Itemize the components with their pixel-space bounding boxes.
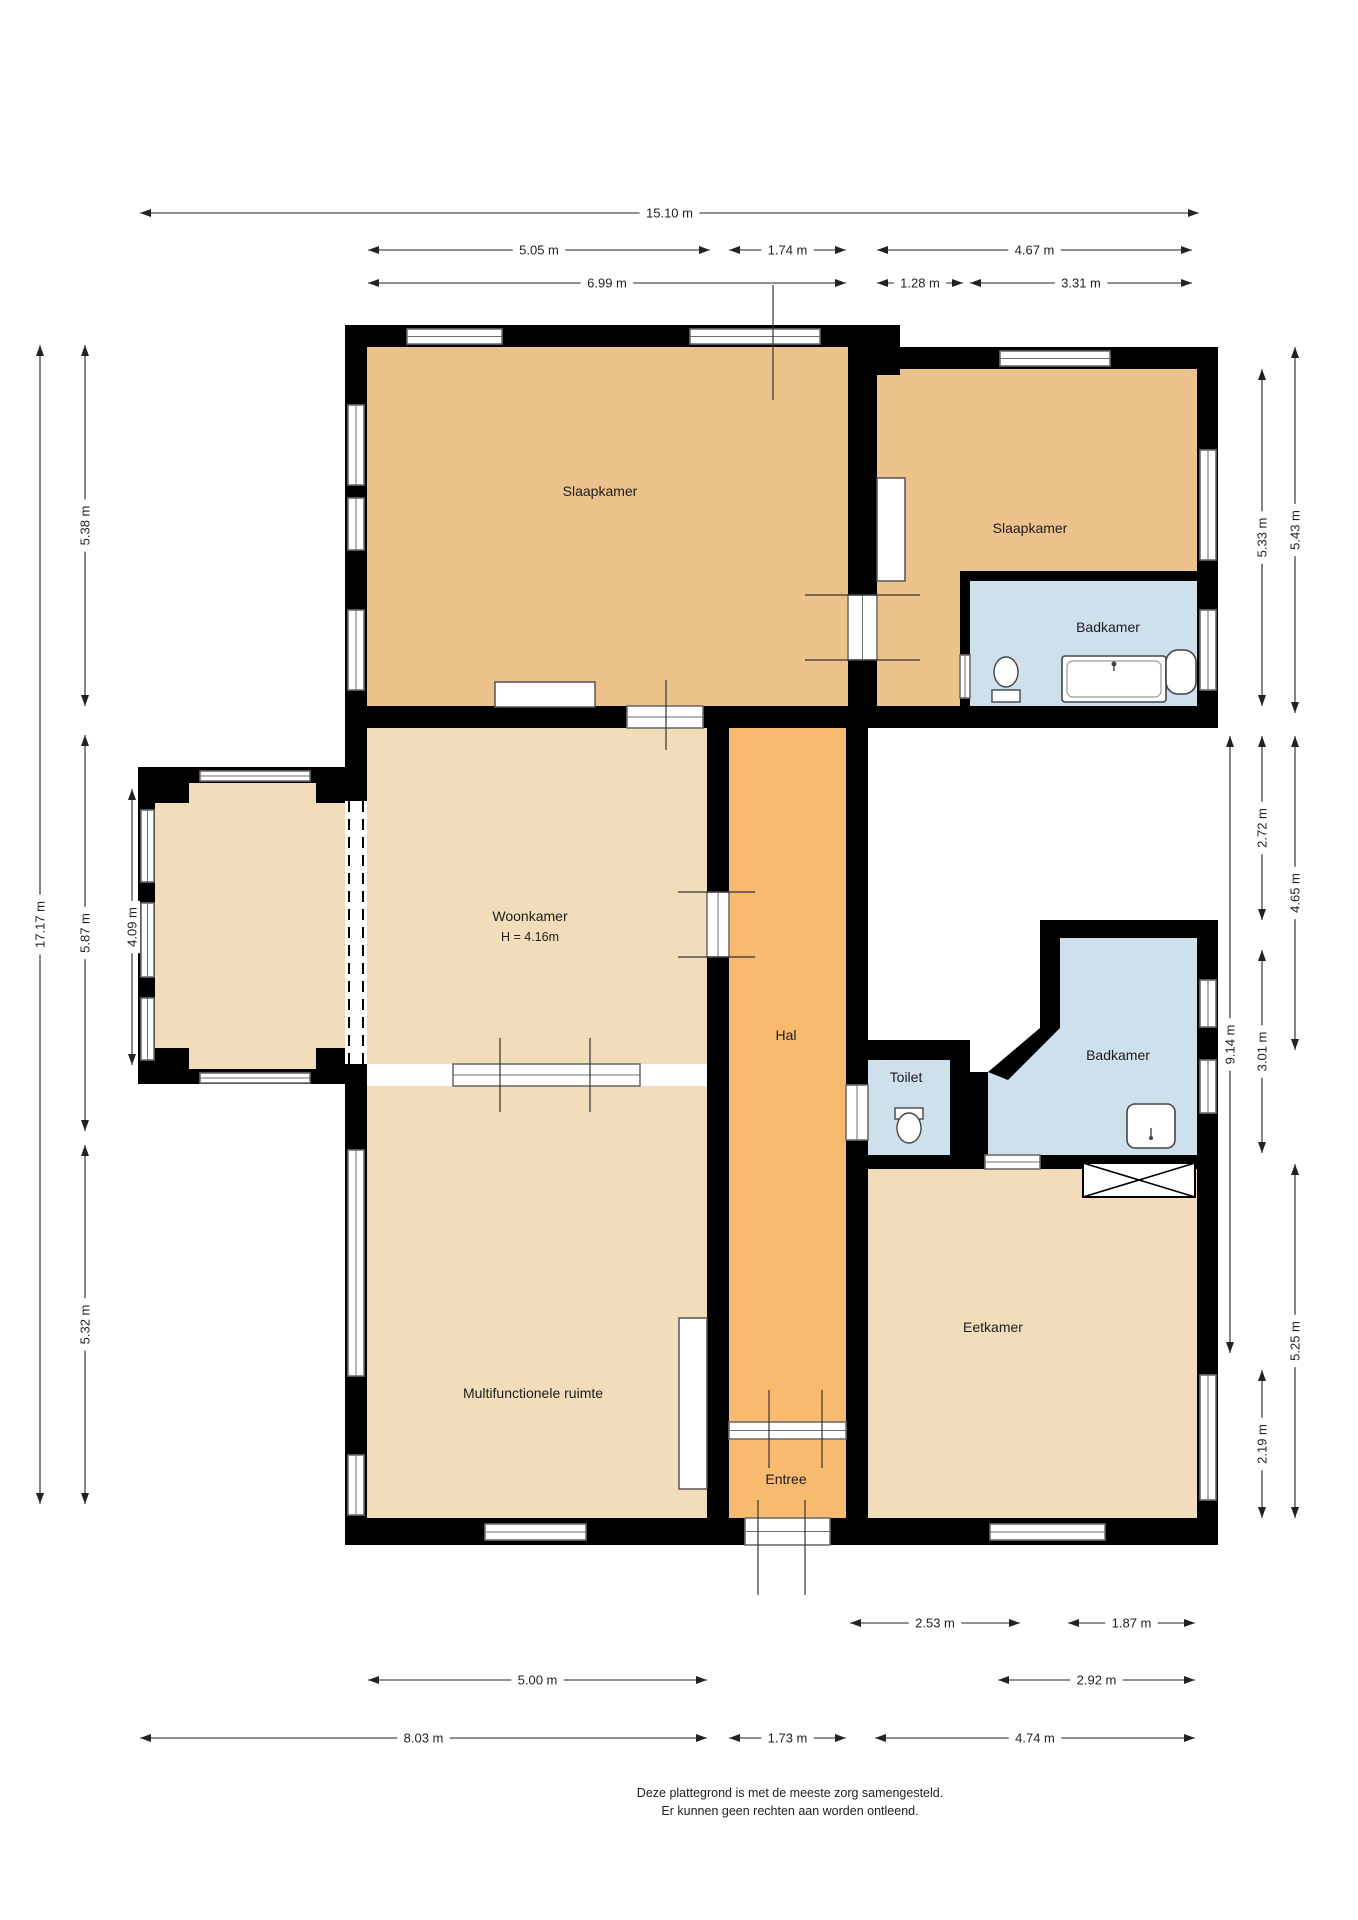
dimension-label: 5.05 m — [519, 243, 559, 258]
room-eetkamer — [868, 1169, 1197, 1518]
floorplan-page: SlaapkamerSlaapkamerBadkamerWoonkamerH =… — [0, 0, 1358, 1920]
room-sublabel-woonkamer: H = 4.16m — [501, 930, 559, 944]
dimension-label-group: 3.01 m — [1254, 1025, 1270, 1077]
wall-badkamer2-top-wall — [1040, 920, 1197, 938]
dimension-label-group: 5.38 m — [77, 499, 93, 551]
dimension-label: 5.32 m — [78, 1305, 93, 1345]
wall-toilet-top-wall — [846, 1040, 970, 1060]
dimension-label-group: 17.17 m — [32, 895, 48, 955]
dimension-label-group: 5.43 m — [1287, 504, 1303, 556]
room-erker — [155, 783, 367, 1069]
dimension-label: 2.19 m — [1255, 1424, 1270, 1464]
dimension-label-group: 5.32 m — [77, 1298, 93, 1350]
dimension-label-group: 4.09 m — [124, 901, 140, 953]
dimension-label: 4.09 m — [125, 907, 140, 947]
room-label-multifunctionele-ruimte: Multifunctionele ruimte — [463, 1385, 603, 1401]
sink-icon-badkamer1 — [1166, 650, 1196, 694]
dimension-label-group: 6.99 m — [581, 275, 633, 291]
room-label-slaapkamer-1: Slaapkamer — [563, 483, 638, 499]
room-multifunctionele-ruimte — [367, 1086, 707, 1518]
dimension-label: 9.14 m — [1223, 1025, 1238, 1065]
dimension-label: 17.17 m — [33, 901, 48, 948]
dimension-label: 3.31 m — [1061, 276, 1101, 291]
dimension-label: 2.72 m — [1255, 808, 1270, 848]
sink-icon-badkamer2 — [1127, 1104, 1175, 1148]
dimension-label-group: 5.05 m — [513, 242, 565, 258]
sink2-tap-dot — [1149, 1136, 1153, 1140]
dimension-label: 5.00 m — [518, 1673, 558, 1688]
dimension-label: 5.43 m — [1288, 510, 1303, 550]
dimension-label-group: 1.73 m — [761, 1730, 813, 1746]
room-label-toilet: Toilet — [890, 1069, 923, 1085]
wall-divider-pilaster — [848, 347, 900, 375]
closet-slaapkamer2 — [877, 478, 905, 581]
toilet-icon-badkamer1-bowl — [994, 657, 1018, 687]
wall-bedroom-divider-wall — [848, 325, 877, 728]
room-slaapkamer-1 — [367, 345, 877, 706]
dimension-label-group: 5.87 m — [77, 907, 93, 959]
dimension-label-group: 1.74 m — [761, 242, 813, 258]
toilet-icon-toilet-bowl — [897, 1113, 921, 1143]
room-woonkamer — [367, 728, 707, 1064]
dimension-label-group: 2.92 m — [1070, 1672, 1122, 1688]
room-label-badkamer-1: Badkamer — [1076, 619, 1140, 635]
wall-woonkamer-hal-wall — [707, 728, 729, 1518]
dimension-label-group: 2.72 m — [1254, 802, 1270, 854]
wall-badkamer2-left-wall — [1040, 938, 1060, 1028]
wall-bay-pier-2 — [138, 980, 155, 995]
footer-disclaimer-line1: Deze plattegrond is met de meeste zorg s… — [637, 1786, 943, 1800]
dimension-label: 3.01 m — [1255, 1032, 1270, 1072]
room-label-entree: Entree — [765, 1471, 806, 1487]
dimension-label-group: 5.33 m — [1254, 511, 1270, 563]
dimension-label-group: 1.87 m — [1105, 1615, 1157, 1631]
dimension-label: 5.25 m — [1288, 1321, 1303, 1361]
wall-bedroom-bottom-wall — [345, 706, 1218, 728]
dimension-label: 1.73 m — [768, 1731, 808, 1746]
wall-badkamer1-top-wall — [960, 571, 1197, 581]
dimension-label: 2.92 m — [1077, 1673, 1117, 1688]
dimension-label: 4.65 m — [1288, 873, 1303, 913]
room-label-eetkamer: Eetkamer — [963, 1319, 1023, 1335]
dimension-label-group: 9.14 m — [1222, 1018, 1238, 1070]
dimension-label: 1.87 m — [1112, 1616, 1152, 1631]
dimension-label-group: 3.31 m — [1055, 275, 1107, 291]
dimension-label: 1.74 m — [768, 243, 808, 258]
room-label-slaapkamer-2: Slaapkamer — [993, 520, 1068, 536]
room-label-woonkamer: Woonkamer — [492, 908, 568, 924]
dimension-label: 2.53 m — [915, 1616, 955, 1631]
dimension-label-group: 2.19 m — [1254, 1418, 1270, 1470]
room-label-badkamer-2: Badkamer — [1086, 1047, 1150, 1063]
closet-multifunctionele — [679, 1318, 707, 1489]
dimension-label: 4.74 m — [1015, 1731, 1055, 1746]
dimension-label: 4.67 m — [1015, 243, 1055, 258]
closet-slaapkamer1 — [495, 682, 595, 707]
wall-badkamer2-left-lower-wall — [970, 1072, 988, 1155]
footer-disclaimer-line2: Er kunnen geen rechten aan worden ontlee… — [661, 1804, 918, 1818]
dimension-label-group: 4.74 m — [1009, 1730, 1061, 1746]
dimension-label-group: 1.28 m — [894, 275, 946, 291]
dimension-label-group: 4.67 m — [1008, 242, 1060, 258]
wall-bay-pier-1 — [138, 885, 155, 900]
dimension-label-group: 5.25 m — [1287, 1315, 1303, 1367]
dimension-label: 5.33 m — [1255, 518, 1270, 558]
dimension-label-group: 8.03 m — [397, 1730, 449, 1746]
floorplan-canvas: SlaapkamerSlaapkamerBadkamerWoonkamerH =… — [0, 0, 1358, 1920]
dimension-label-group: 2.53 m — [909, 1615, 961, 1631]
room-label-hal: Hal — [775, 1027, 796, 1043]
room-hal — [729, 728, 846, 1422]
toilet-icon-badkamer1-tank — [992, 690, 1020, 702]
wall-bay-corner-tr — [316, 767, 367, 803]
wall-toilet-right-wall — [950, 1060, 970, 1155]
dimension-label-group: 4.65 m — [1287, 867, 1303, 919]
dimension-label-group: 15.10 m — [640, 205, 700, 221]
dimension-label: 5.38 m — [78, 506, 93, 546]
dimension-label: 1.28 m — [900, 276, 940, 291]
dimension-label: 15.10 m — [646, 206, 693, 221]
dimension-label: 5.87 m — [78, 913, 93, 953]
dimension-label: 8.03 m — [404, 1731, 444, 1746]
dimension-label-group: 5.00 m — [511, 1672, 563, 1688]
dimension-label: 6.99 m — [587, 276, 627, 291]
wall-bay-corner-tl — [138, 767, 189, 803]
